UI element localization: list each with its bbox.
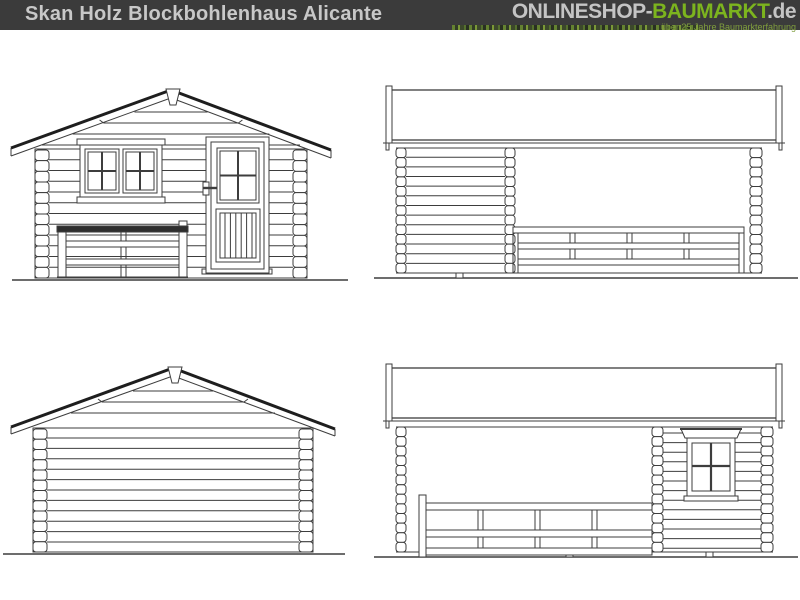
side-elevation-window-view bbox=[374, 364, 798, 557]
front-porch-railing bbox=[57, 221, 188, 277]
rear-elevation-view bbox=[3, 367, 345, 554]
side2-log-ends-left bbox=[396, 427, 406, 552]
roof-apex-keystone bbox=[168, 367, 182, 383]
side2-roof bbox=[383, 364, 785, 428]
rear-log-wall bbox=[33, 391, 313, 552]
side1-log-ends-left bbox=[396, 148, 406, 273]
side-elevation-terrace-view bbox=[374, 86, 798, 278]
front-elevation-view bbox=[11, 89, 348, 280]
front-corner-log-ends-left bbox=[35, 150, 49, 278]
side1-roof bbox=[383, 86, 785, 150]
elevation-drawings-canvas bbox=[0, 0, 800, 600]
front-double-window bbox=[77, 139, 165, 203]
rear-corner-log-ends-right bbox=[299, 429, 313, 552]
front-corner-log-ends-right bbox=[293, 150, 307, 278]
rear-corner-log-ends-left bbox=[33, 429, 47, 552]
side2-window bbox=[680, 429, 742, 501]
side1-terrace-railing bbox=[513, 227, 744, 273]
roof-apex-keystone bbox=[166, 89, 180, 105]
front-door bbox=[202, 137, 272, 274]
side1-log-ends-right bbox=[750, 148, 762, 273]
side2-log-ends-right bbox=[761, 427, 773, 552]
side2-log-ends-middle bbox=[652, 427, 663, 552]
side2-terrace-railing bbox=[419, 495, 652, 557]
